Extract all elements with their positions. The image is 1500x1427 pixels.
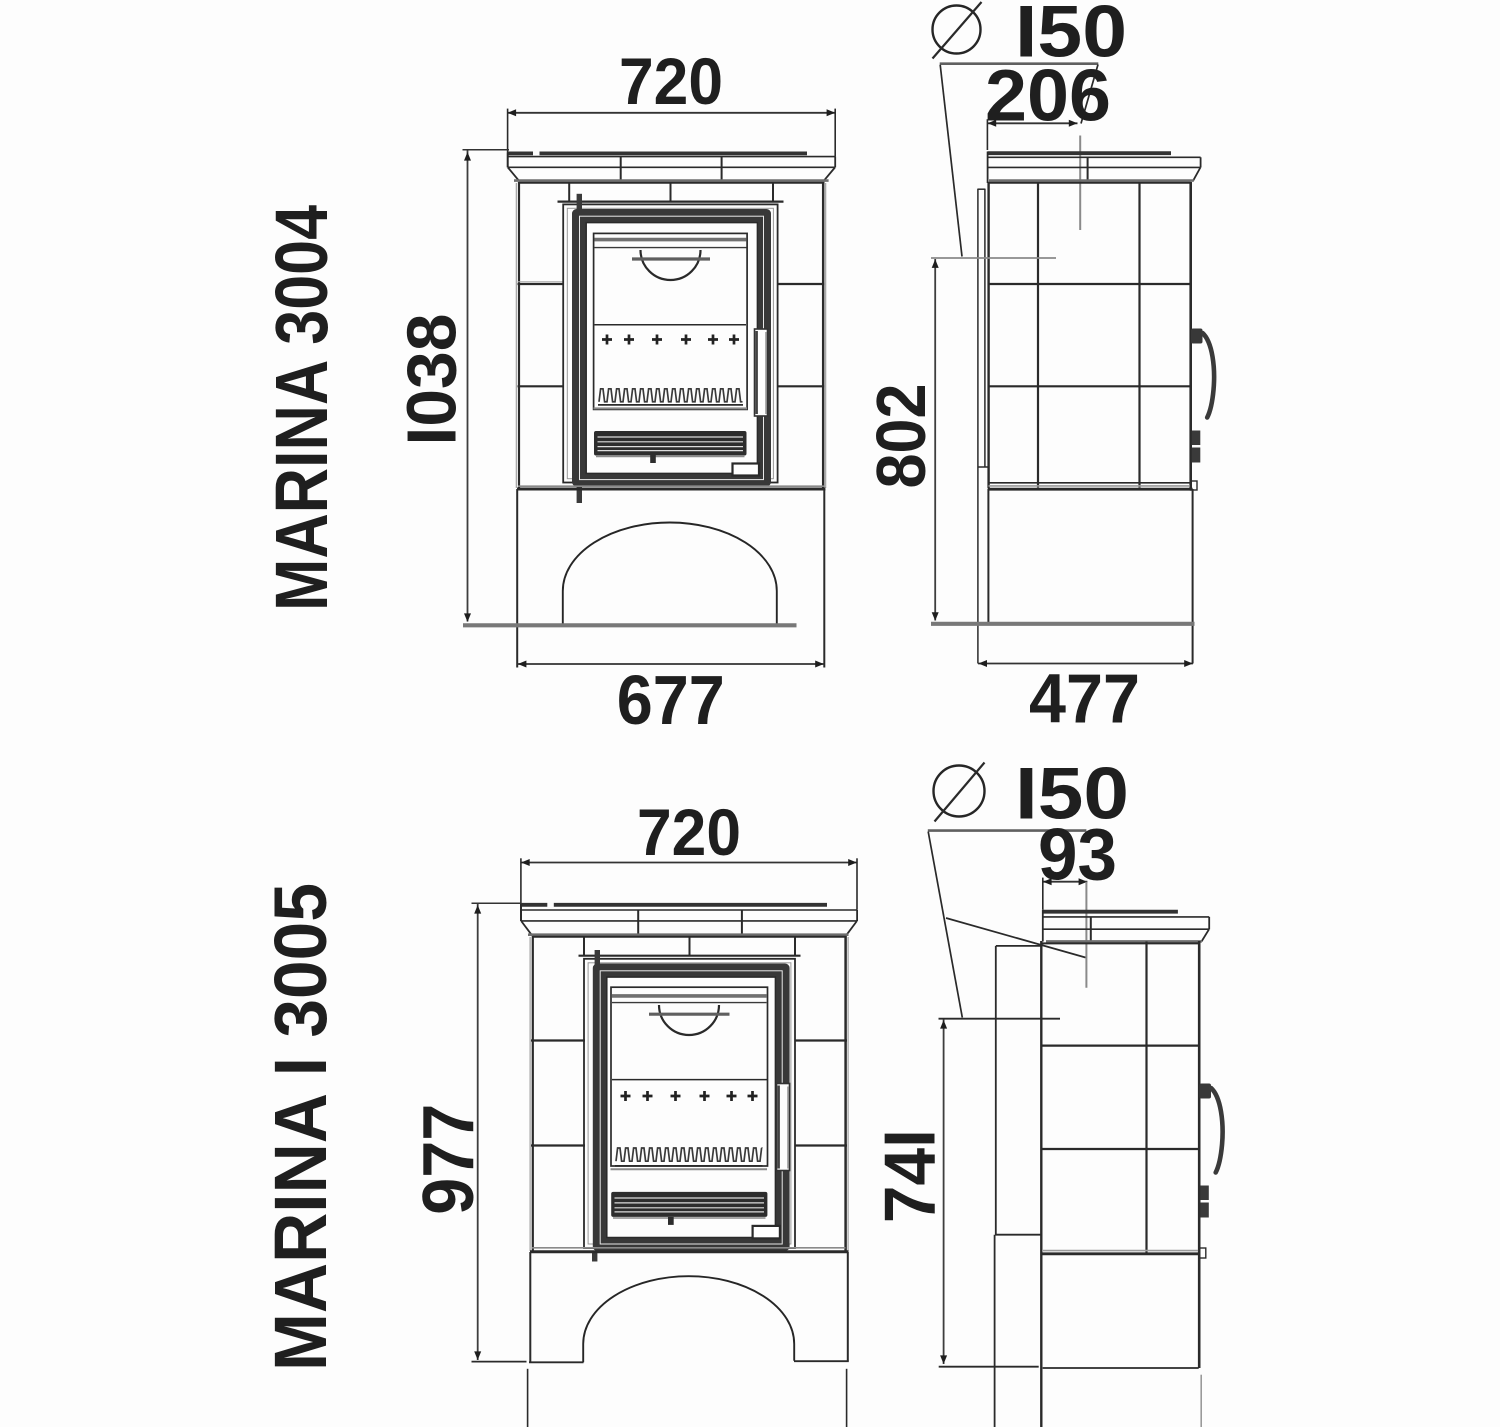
svg-text:677: 677 — [617, 661, 725, 739]
svg-text:206: 206 — [985, 56, 1111, 137]
svg-text:I038: I038 — [393, 314, 471, 446]
svg-text:MARINA 3004: MARINA 3004 — [260, 205, 343, 611]
svg-text:977: 977 — [409, 1104, 489, 1215]
svg-text:MARINA I 3005: MARINA I 3005 — [259, 883, 342, 1371]
svg-text:477: 477 — [1029, 660, 1140, 738]
svg-text:720: 720 — [619, 44, 723, 118]
svg-text:720: 720 — [637, 795, 741, 869]
svg-text:802: 802 — [862, 384, 940, 489]
svg-text:74I: 74I — [871, 1129, 951, 1223]
